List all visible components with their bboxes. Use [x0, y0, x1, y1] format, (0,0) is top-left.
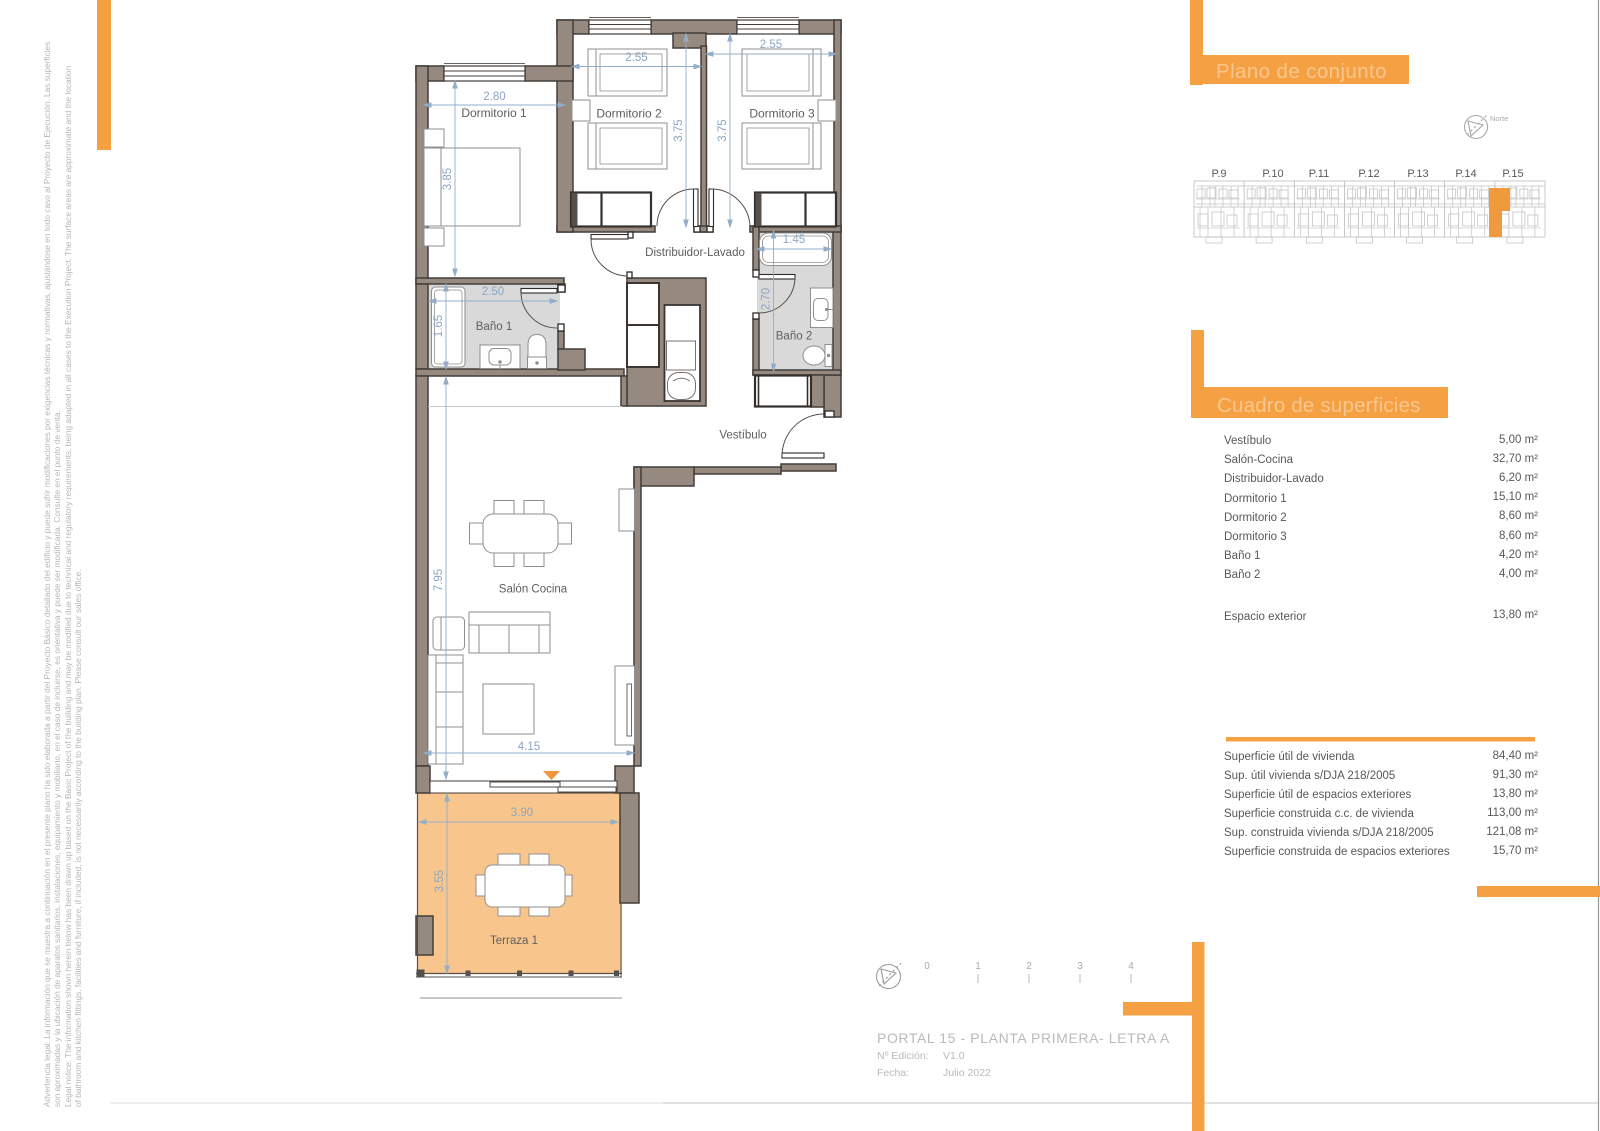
svg-text:3.85: 3.85 [442, 168, 454, 190]
svg-text:4,00 m²: 4,00 m² [1499, 568, 1538, 580]
svg-text:Salón-Cocina: Salón-Cocina [1224, 454, 1294, 466]
svg-text:PORTAL 15 - PLANTA PRIMERA- LE: PORTAL 15 - PLANTA PRIMERA- LETRA A [877, 1030, 1170, 1046]
svg-text:2.55: 2.55 [625, 52, 647, 64]
svg-text:Nº Edición:: Nº Edición: [877, 1050, 929, 1062]
svg-text:1.65: 1.65 [433, 315, 445, 337]
svg-text:Dormitorio 3: Dormitorio 3 [749, 107, 815, 121]
svg-text:Julio 2022: Julio 2022 [943, 1067, 991, 1079]
svg-text:Baño 1: Baño 1 [476, 321, 512, 333]
svg-text:Cuadro de superficies: Cuadro de superficies [1217, 394, 1421, 417]
svg-text:13,80 m²: 13,80 m² [1493, 788, 1539, 800]
svg-text:Superficie útil de espacios ex: Superficie útil de espacios exteriores [1224, 789, 1412, 801]
svg-text:P.11: P.11 [1309, 168, 1329, 180]
svg-text:113,00 m²: 113,00 m² [1487, 807, 1538, 819]
svg-text:1: 1 [975, 961, 981, 972]
svg-text:Dormitorio 2: Dormitorio 2 [596, 107, 662, 121]
svg-text:V1.0: V1.0 [943, 1050, 965, 1062]
svg-text:Salón Cocina: Salón Cocina [499, 584, 568, 596]
svg-text:3: 3 [1077, 961, 1083, 972]
svg-text:8,60 m²: 8,60 m² [1499, 510, 1538, 522]
svg-text:Baño 2: Baño 2 [1224, 569, 1260, 581]
svg-text:Legal notice: The information: Legal notice: The information shown here… [63, 65, 73, 1107]
svg-text:Distribuidor-Lavado: Distribuidor-Lavado [645, 247, 745, 259]
svg-text:32,70 m²: 32,70 m² [1493, 453, 1539, 465]
svg-text:P.13: P.13 [1407, 168, 1428, 180]
svg-text:15,10 m²: 15,10 m² [1493, 491, 1539, 503]
svg-text:3.90: 3.90 [511, 807, 533, 819]
svg-text:Distribuidor-Lavado: Distribuidor-Lavado [1224, 473, 1324, 485]
svg-text:Sup. útil vivienda s/DJA 218/2: Sup. útil vivienda s/DJA 218/2005 [1224, 770, 1395, 782]
svg-text:15,70 m²: 15,70 m² [1493, 845, 1539, 857]
svg-text:Vestíbulo: Vestíbulo [1224, 435, 1271, 447]
svg-text:Fecha:: Fecha: [877, 1067, 909, 1079]
svg-text:2: 2 [1026, 961, 1032, 972]
svg-text:13,80 m²: 13,80 m² [1493, 609, 1539, 621]
svg-text:2.70: 2.70 [761, 288, 773, 310]
svg-text:Advertencia legal: La informac: Advertencia legal: La información que se… [42, 42, 52, 1107]
svg-text:8,60 m²: 8,60 m² [1499, 530, 1538, 542]
svg-text:Norte: Norte [1490, 114, 1508, 123]
svg-text:son aproximadas y la ubicación: son aproximadas y la ubicación de aparat… [52, 410, 62, 1107]
svg-text:Sup. construida vivienda s/DJA: Sup. construida vivienda s/DJA 218/2005 [1224, 827, 1434, 839]
svg-text:Dormitorio 3: Dormitorio 3 [1224, 531, 1287, 543]
svg-text:4,20 m²: 4,20 m² [1499, 549, 1538, 561]
svg-text:5,00 m²: 5,00 m² [1499, 434, 1538, 446]
svg-text:Vestíbulo: Vestíbulo [719, 430, 766, 442]
svg-text:Dormitorio 2: Dormitorio 2 [1224, 512, 1287, 524]
svg-text:6,20 m²: 6,20 m² [1499, 472, 1538, 484]
svg-text:Baño 1: Baño 1 [1224, 550, 1260, 562]
svg-text:121,08 m²: 121,08 m² [1486, 826, 1538, 838]
svg-text:3.75: 3.75 [717, 119, 729, 141]
svg-text:Superficie construida de espac: Superficie construida de espacios exteri… [1224, 846, 1450, 858]
svg-text:2.50: 2.50 [482, 286, 504, 298]
svg-text:Dormitorio 1: Dormitorio 1 [461, 106, 527, 120]
svg-text:Terraza 1: Terraza 1 [490, 935, 538, 947]
svg-text:2.80: 2.80 [483, 91, 505, 103]
svg-text:1.45: 1.45 [783, 234, 805, 246]
svg-text:3.75: 3.75 [673, 119, 685, 141]
svg-text:Espacio exterior: Espacio exterior [1224, 611, 1307, 623]
svg-text:Dormitorio 1: Dormitorio 1 [1224, 493, 1287, 505]
svg-text:3.55: 3.55 [434, 870, 446, 892]
svg-text:4.15: 4.15 [518, 741, 540, 753]
svg-text:Superficie construida c.c. de: Superficie construida c.c. de vivienda [1224, 808, 1414, 820]
svg-text:Plano de conjunto: Plano de conjunto [1216, 60, 1387, 83]
svg-text:7.95: 7.95 [433, 569, 445, 591]
svg-text:P.15: P.15 [1502, 168, 1523, 180]
svg-text:P.14: P.14 [1455, 168, 1476, 180]
svg-text:P.12: P.12 [1358, 168, 1379, 180]
svg-text:of bathroom and kitchen fittin: of bathroom and kitchen fittings, facili… [73, 569, 83, 1107]
svg-text:P.10: P.10 [1262, 168, 1283, 180]
svg-text:91,30 m²: 91,30 m² [1493, 769, 1539, 781]
svg-text:4: 4 [1128, 961, 1134, 972]
svg-text:Superficie útil de vivienda: Superficie útil de vivienda [1224, 751, 1355, 763]
svg-text:84,40 m²: 84,40 m² [1493, 750, 1539, 762]
svg-text:P.9: P.9 [1211, 168, 1226, 180]
svg-text:Baño 2: Baño 2 [776, 331, 812, 343]
svg-text:2.55: 2.55 [760, 39, 782, 51]
svg-text:0: 0 [924, 961, 930, 972]
